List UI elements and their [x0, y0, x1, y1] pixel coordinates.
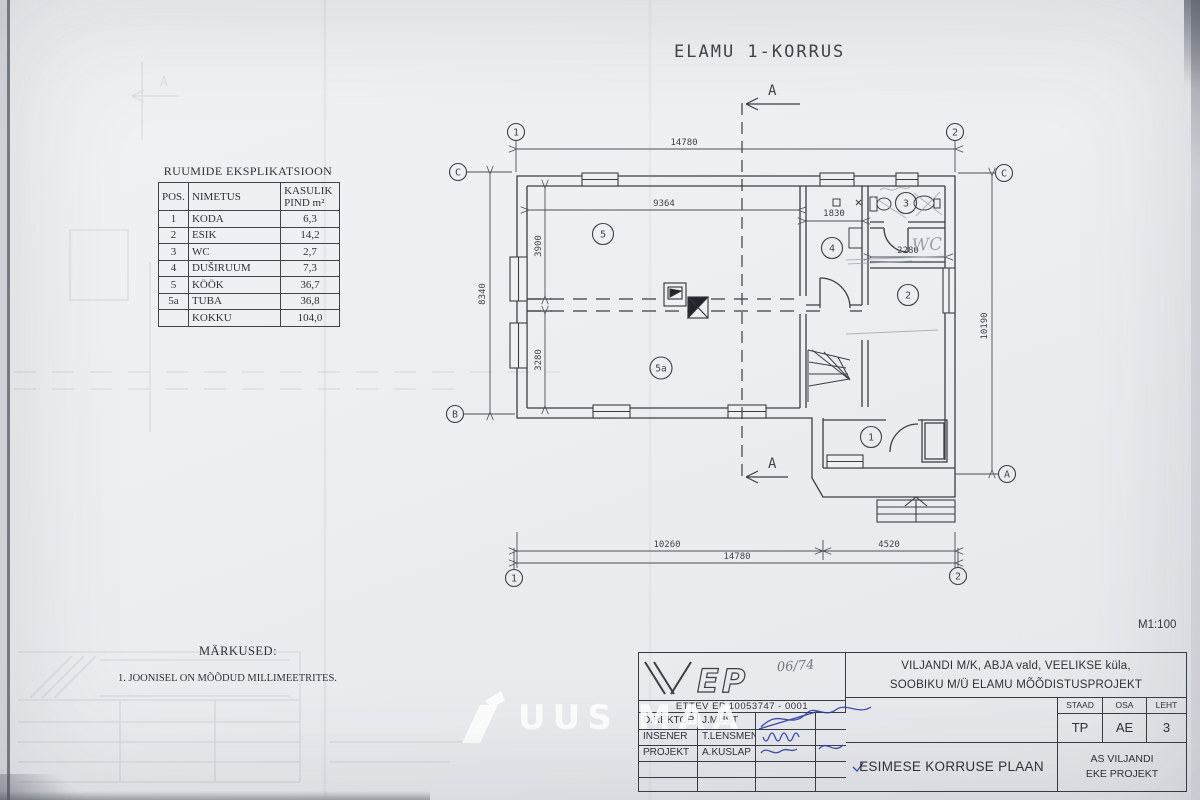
windows: [510, 173, 955, 468]
table-header-row: POS. NIMETUS KASULIK PIND m²: [159, 183, 340, 211]
dim-top-total: 14780: [670, 138, 697, 148]
role-cell: INSENER: [639, 729, 698, 745]
room-explication-table: RUUMIDE EKSPLIKATSIOON POS. NIMETUS KASU…: [156, 164, 340, 327]
cell-name: KODA: [188, 211, 280, 228]
role-cell: PROJEKT: [639, 745, 698, 761]
cell-pos: 3: [159, 244, 189, 261]
cell-pos: [159, 310, 189, 327]
handwritten-stamp-number: 06/74: [777, 658, 815, 676]
cell-area: 36,8: [281, 293, 340, 310]
name-cell: J.MUST: [698, 713, 756, 729]
cell-area: 36,7: [281, 277, 340, 294]
dim-dush-width: 1830: [823, 209, 845, 219]
grid-c-left: C: [455, 168, 461, 179]
col-header-area: KASULIK PIND m²: [281, 183, 340, 211]
notes-block: MÄRKUSED: 1. JOONISEL ON MÕÕDUD MILLIMEE…: [118, 644, 358, 684]
table-row: 5KÖÖK36,7: [159, 277, 340, 294]
company-cell: AS VILJANDI EKE PROJEKT: [1058, 743, 1186, 791]
cell-area: 14,2: [281, 227, 340, 244]
grid-c-right: C: [1001, 169, 1007, 180]
cell-pos: 5: [159, 277, 189, 294]
notes-heading: MÄRKUSED:: [118, 644, 358, 659]
cell-area: 2,7: [281, 244, 340, 261]
dim-inner-width: 9364: [653, 199, 675, 209]
table-row-total: KOKKU104,0: [159, 310, 340, 327]
room-label-5: 5: [600, 230, 606, 241]
dim-left-height: 8340: [478, 283, 488, 305]
project-line2: SOOBIKU M/Ü ELAMU MÕÕDISTUSPROJEKT: [890, 679, 1142, 691]
grid-2-top: 2: [952, 128, 958, 139]
notes-item: 1. JOONISEL ON MÕÕDUD MILLIMEETRITES.: [118, 673, 358, 684]
company-line2: EKE PROJEKT: [1086, 768, 1158, 780]
vep-logo: EP: [639, 653, 846, 701]
company-line1: AS VILJANDI: [1090, 753, 1153, 765]
section-label-top: A: [768, 83, 777, 99]
osa-value: AE: [1103, 714, 1146, 742]
role-cell: [639, 777, 698, 791]
room-label-1: 1: [868, 433, 874, 444]
cell-name: KÖÖK: [188, 277, 280, 294]
name-cell: [698, 777, 756, 791]
dim-bottom-left: 10260: [653, 540, 680, 550]
room-label-5a: 5a: [655, 364, 666, 375]
dim-bottom-total: 14780: [723, 552, 750, 562]
sheet-title: ELAMU 1-KORRUS: [674, 42, 845, 62]
middle-empty-cell: [846, 698, 1058, 743]
section-line-a: [742, 98, 800, 483]
title-block: EP 06/74 ETTEV EP 10053747 - 0001 DIREKT…: [638, 652, 1187, 792]
osa-label: OSA: [1103, 698, 1146, 714]
cell-pos: 1: [159, 211, 189, 228]
col-header-pos: POS.: [159, 183, 189, 211]
photographed-drawing-sheet: A: [0, 0, 1200, 800]
table-row: 2ESIK14,2: [159, 227, 340, 244]
table-row: 1KODA6,3: [159, 211, 340, 228]
dimension-lines: [464, 141, 998, 569]
dim-right-height: 10190: [980, 312, 990, 339]
name-cell: A.KUSLAP: [698, 745, 756, 761]
room-label-3: 3: [903, 199, 909, 210]
staad-label: STAAD: [1058, 698, 1102, 714]
table-row: 3WC2,7: [159, 244, 340, 261]
osa-cell: OSA AE: [1103, 698, 1147, 743]
staad-value: TP: [1058, 714, 1102, 742]
cell-name: WC: [188, 244, 280, 261]
project-line1: VILJANDI M/K, ABJA vald, VEELIKSE küla,: [901, 660, 1131, 672]
dim-bottom-right: 4520: [878, 540, 900, 550]
svg-text:A: A: [160, 75, 168, 90]
leht-value: 3: [1147, 714, 1186, 742]
scale-label: M1:100: [1138, 619, 1176, 631]
vep-logo-letters: EP: [697, 662, 748, 700]
explication-title: RUUMIDE EKSPLIKATSIOON: [156, 164, 340, 179]
building-walls: [517, 176, 955, 497]
col-header-area-line1: KASULIK: [284, 185, 332, 197]
staad-cell: STAAD TP: [1058, 698, 1103, 743]
project-description: VILJANDI M/K, ABJA vald, VEELIKSE küla, …: [846, 653, 1186, 698]
pencil-note-wc: WC: [911, 234, 942, 256]
explication-grid: POS. NIMETUS KASULIK PIND m² 1KODA6,3 2E…: [158, 182, 340, 327]
drawing-title: ESIMESE KORRUSE PLAAN: [846, 743, 1058, 791]
leht-label: LEHT: [1147, 698, 1186, 714]
grid-a-right: A: [1004, 470, 1010, 481]
grid-2-bottom: 2: [955, 572, 961, 583]
cell-name: DUŠIRUUM: [188, 260, 280, 277]
removed-wall-dashes: [527, 299, 798, 311]
dim-kook-depth: 3900: [534, 235, 544, 257]
logo-cell: EP 06/74: [639, 653, 846, 701]
table-row: 4DUŠIRUUM7,3: [159, 260, 340, 277]
cell-pos: 2: [159, 227, 189, 244]
cell-pos: 4: [159, 260, 189, 277]
dim-tuba-depth: 3280: [534, 349, 544, 371]
table-row: 5aTUBA36,8: [159, 293, 340, 310]
name-cell: [698, 761, 756, 777]
grid-bubbles: [447, 124, 1016, 587]
cell-area: 104,0: [281, 310, 340, 327]
grid-1-bottom: 1: [511, 574, 517, 585]
room-label-2: 2: [905, 291, 911, 302]
room-label-4: 4: [829, 244, 835, 255]
cell-pos: 5a: [159, 293, 189, 310]
dimension-labels: 14780 9364 3900 3280 8340 10190 1830 228…: [478, 138, 990, 562]
col-header-area-line2: PIND m²: [284, 197, 324, 209]
cell-name: TUBA: [188, 293, 280, 310]
cell-name: ESIK: [188, 227, 280, 244]
grid-b-left: B: [452, 410, 458, 421]
grid-1-top: 1: [513, 128, 519, 139]
role-cell: DIREKTOR: [639, 713, 698, 729]
cell-area: 7,3: [281, 260, 340, 277]
role-cell: [639, 761, 698, 777]
chimney-flue-symbols: [664, 283, 708, 318]
leht-cell: LEHT 3: [1147, 698, 1186, 743]
cell-area: 6,3: [281, 211, 340, 228]
col-header-name: NIMETUS: [188, 183, 280, 211]
staircase: [808, 350, 850, 402]
entry-steps: [877, 497, 955, 522]
cell-name: KOKKU: [188, 310, 280, 327]
name-cell: T.LENSMENT: [698, 729, 756, 745]
section-label-bottom: A: [768, 456, 777, 472]
